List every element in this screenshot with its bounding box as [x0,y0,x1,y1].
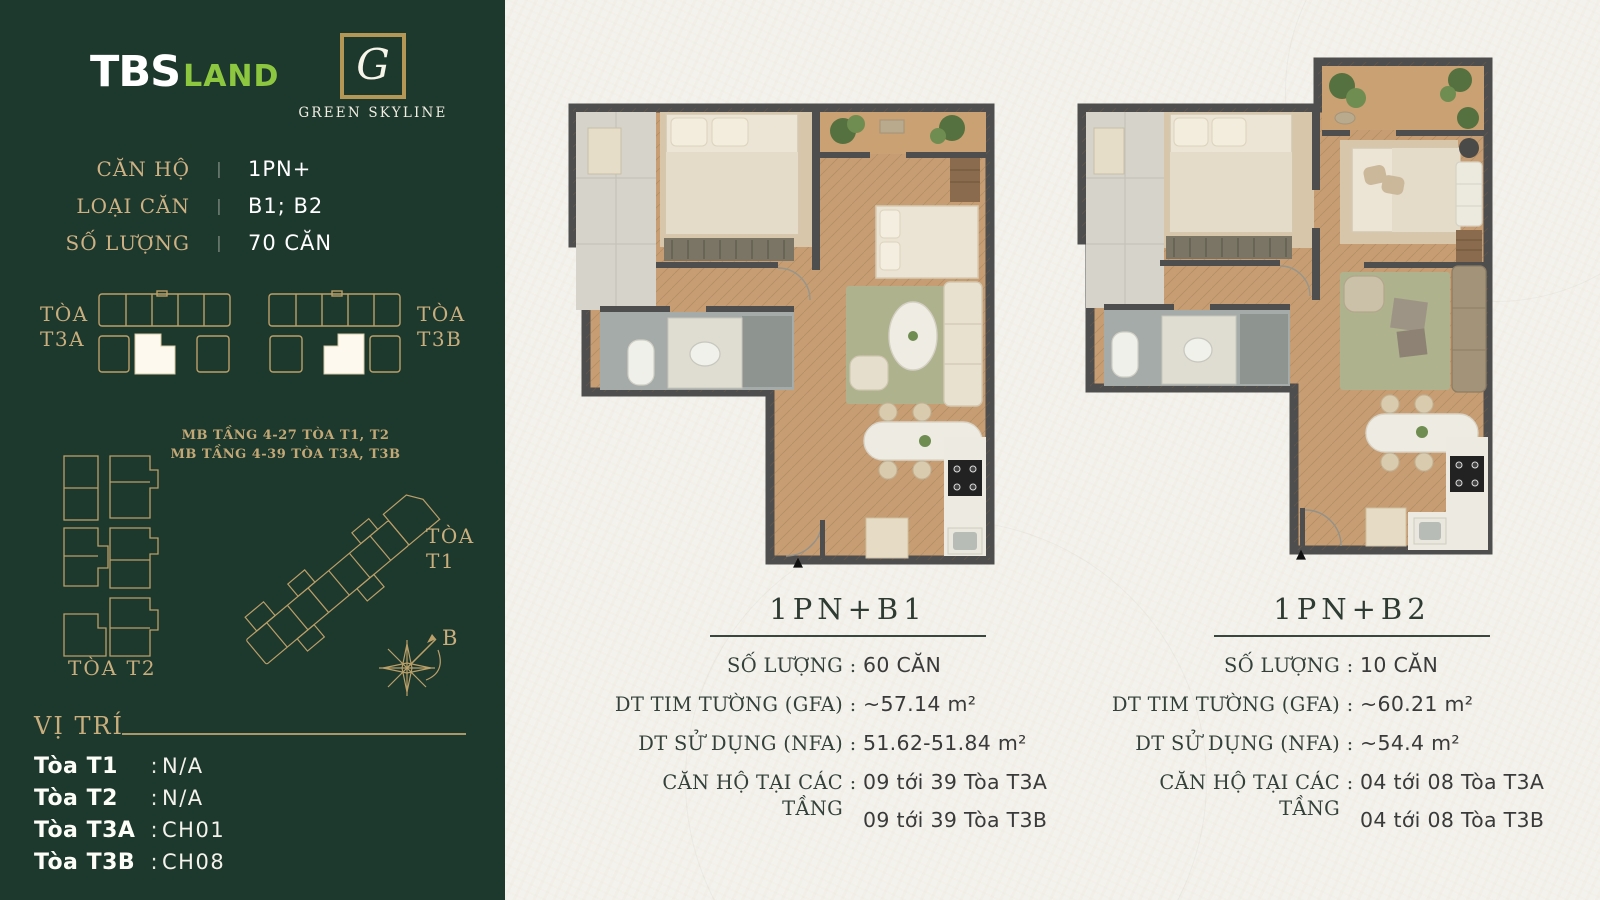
floorplan-b1-graphic [560,80,1000,572]
spec-value-line2: 09 tới 39 Tòa T3B [863,807,1093,833]
spec-colon: : [843,655,863,677]
spec-colon: : [1340,694,1360,716]
vitri-label: Tòa T3A [34,818,146,843]
entry-marker-b2: ▲ [1296,548,1306,561]
living-room [1340,266,1486,392]
info-label: SỐ LƯỢNG [58,231,190,255]
vitri-colon: : [146,850,162,874]
spec-row: CĂN HỘ TẠI CÁC TẦNG : 09 tới 39 Tòa T3A … [603,769,1093,833]
vitri-label: Tòa T2 [34,786,146,811]
tbs-land-logo: TBS LAND [90,52,279,92]
vitri-divider-line [122,733,466,735]
vitri-value: N/A [162,754,464,778]
vitri-value: CH08 [162,850,464,874]
tower-label-line: TÒA [426,524,475,549]
vitri-label: Tòa T3B [34,850,146,875]
entry-hall [576,112,656,310]
info-row-loai-can: LOẠI CĂN | B1; B2 [58,187,458,224]
title-underline [710,635,986,637]
compass-north-label: B [442,626,457,650]
tower-label-line: TÒA [40,302,89,327]
vitri-row-t1: Tòa T1 : N/A [34,754,464,779]
tower-t3a-label: TÒA T3A [40,302,89,352]
vitri-colon: : [146,786,162,810]
entry-marker-b1: ▲ [793,556,803,569]
siteplan-t2-diagram [58,452,176,658]
unit-info: CĂN HỘ | 1PN+ LOẠI CĂN | B1; B2 SỐ LƯỢNG… [58,150,458,261]
brochure-page: ▲ ▲ 1PN+B1 SỐ LƯỢNG : 60 CĂN DT TIM TƯỜN… [0,0,1600,900]
vitri-value: CH01 [162,818,464,842]
info-label: CĂN HỘ [58,157,190,181]
vitri-row-t3a: Tòa T3A : CH01 [34,818,464,843]
spec-colon: : [843,733,863,755]
info-label: LOẠI CĂN [58,194,190,218]
floor-range-line1: MB TẦNG 4-27 TÒA T1, T2 [128,426,443,445]
spec-label: DT TIM TƯỜNG (GFA) [1105,692,1340,718]
vitri-colon: : [146,818,162,842]
vitri-table: Tòa T1 : N/A Tòa T2 : N/A Tòa T3A : CH01… [34,754,464,882]
info-value: 1PN+ [248,157,458,181]
info-separator: | [190,233,248,252]
spec-value-line1: 09 tới 39 Tòa T3A [863,769,1093,795]
land-logo-text: LAND [183,62,279,92]
tower-t3b-label: TÒA T3B [417,302,466,352]
spec-value: ~57.14 m² [863,691,1093,717]
vitri-value: N/A [162,786,464,810]
spec-label: CĂN HỘ TẠI CÁC TẦNG [603,770,843,822]
spec-value: 09 tới 39 Tòa T3A 09 tới 39 Tòa T3B [863,769,1093,833]
spec-value: 10 CĂN [1360,652,1599,678]
spec-colon: : [843,772,863,794]
entry-hall [1086,112,1164,308]
compass-arrowhead [427,634,436,643]
spec-row: DT SỬ DỤNG (NFA) : ~54.4 m² [1105,730,1599,757]
spec-value: ~60.21 m² [1360,691,1599,717]
keyplan-t3a-diagram [97,290,232,376]
spec-label: CĂN HỘ TẠI CÁC TẦNG [1105,770,1340,822]
info-separator: | [190,159,248,178]
vitri-label: Tòa T1 [34,754,146,779]
spec-row: SỐ LƯỢNG : 10 CĂN [1105,652,1599,679]
spec-block-b1: 1PN+B1 SỐ LƯỢNG : 60 CĂN DT TIM TƯỜNG (G… [603,592,1093,845]
balcony [1322,66,1484,136]
spec-value: 51.62-51.84 m² [863,730,1093,756]
siteplan-t1-label: TÒA T1 [426,524,475,574]
info-value: B1; B2 [248,194,458,218]
spec-colon: : [1340,772,1360,794]
highlighted-unit [324,334,364,374]
compass-icon [379,639,440,696]
tower-label-line: T3A [40,327,89,352]
highlighted-unit [135,334,175,374]
monogram-g-icon: G [356,40,390,89]
balcony [820,112,986,158]
spec-value-line2: 04 tới 08 Tòa T3B [1360,807,1599,833]
keyplan-t3b-diagram [267,290,402,376]
plan-title-b2: 1PN+B2 [1105,592,1599,626]
bathroom [1104,304,1290,386]
vitri-title: VỊ TRÍ [34,712,124,740]
tower-label-line: T1 [426,549,475,574]
siteplan-t2-label: TÒA T2 [68,656,157,681]
spec-colon: : [843,694,863,716]
info-value: 70 CĂN [248,231,458,255]
spec-value: ~54.4 m² [1360,730,1599,756]
siteplan-t1-diagram [230,492,470,697]
bathroom [600,306,794,390]
vitri-colon: : [146,754,162,778]
spec-row: CĂN HỘ TẠI CÁC TẦNG : 04 tới 08 Tòa T3A … [1105,769,1599,833]
vitri-row-t3b: Tòa T3B : CH08 [34,850,464,875]
info-separator: | [190,196,248,215]
spec-row: DT SỬ DỤNG (NFA) : 51.62-51.84 m² [603,730,1093,757]
plan-title-b1: 1PN+B1 [603,592,1093,626]
spec-colon: : [1340,733,1360,755]
info-row-can-ho: CĂN HỘ | 1PN+ [58,150,458,187]
spec-value-line1: 04 tới 08 Tòa T3A [1360,769,1599,795]
info-row-so-luong: SỐ LƯỢNG | 70 CĂN [58,224,458,261]
spec-label: DT TIM TƯỜNG (GFA) [603,692,843,718]
project-name: GREEN SKYLINE [288,105,458,121]
spec-value: 60 CĂN [863,652,1093,678]
sidebar: TBS LAND G GREEN SKYLINE CĂN HỘ | 1PN+ L… [0,0,505,900]
title-underline [1214,635,1490,637]
spec-label: DT SỬ DỤNG (NFA) [1105,731,1340,757]
vitri-row-t2: Tòa T2 : N/A [34,786,464,811]
tower-label-line: T3B [417,327,466,352]
spec-label: SỐ LƯỢNG [603,653,843,679]
living-room [846,282,982,406]
floorplan-b2-graphic [1066,48,1500,560]
spec-label: SỐ LƯỢNG [1105,653,1340,679]
spec-row: DT TIM TƯỜNG (GFA) : ~57.14 m² [603,691,1093,718]
spec-value: 04 tới 08 Tòa T3A 04 tới 08 Tòa T3B [1360,769,1599,833]
spec-row: DT TIM TƯỜNG (GFA) : ~60.21 m² [1105,691,1599,718]
spec-row: SỐ LƯỢNG : 60 CĂN [603,652,1093,679]
spec-block-b2: 1PN+B2 SỐ LƯỢNG : 10 CĂN DT TIM TƯỜNG (G… [1105,592,1599,845]
spec-label: DT SỬ DỤNG (NFA) [603,731,843,757]
tower-label-line: TÒA [417,302,466,327]
green-skyline-emblem: G [340,33,406,99]
spec-colon: : [1340,655,1360,677]
tbs-logo-text: TBS [90,52,180,92]
